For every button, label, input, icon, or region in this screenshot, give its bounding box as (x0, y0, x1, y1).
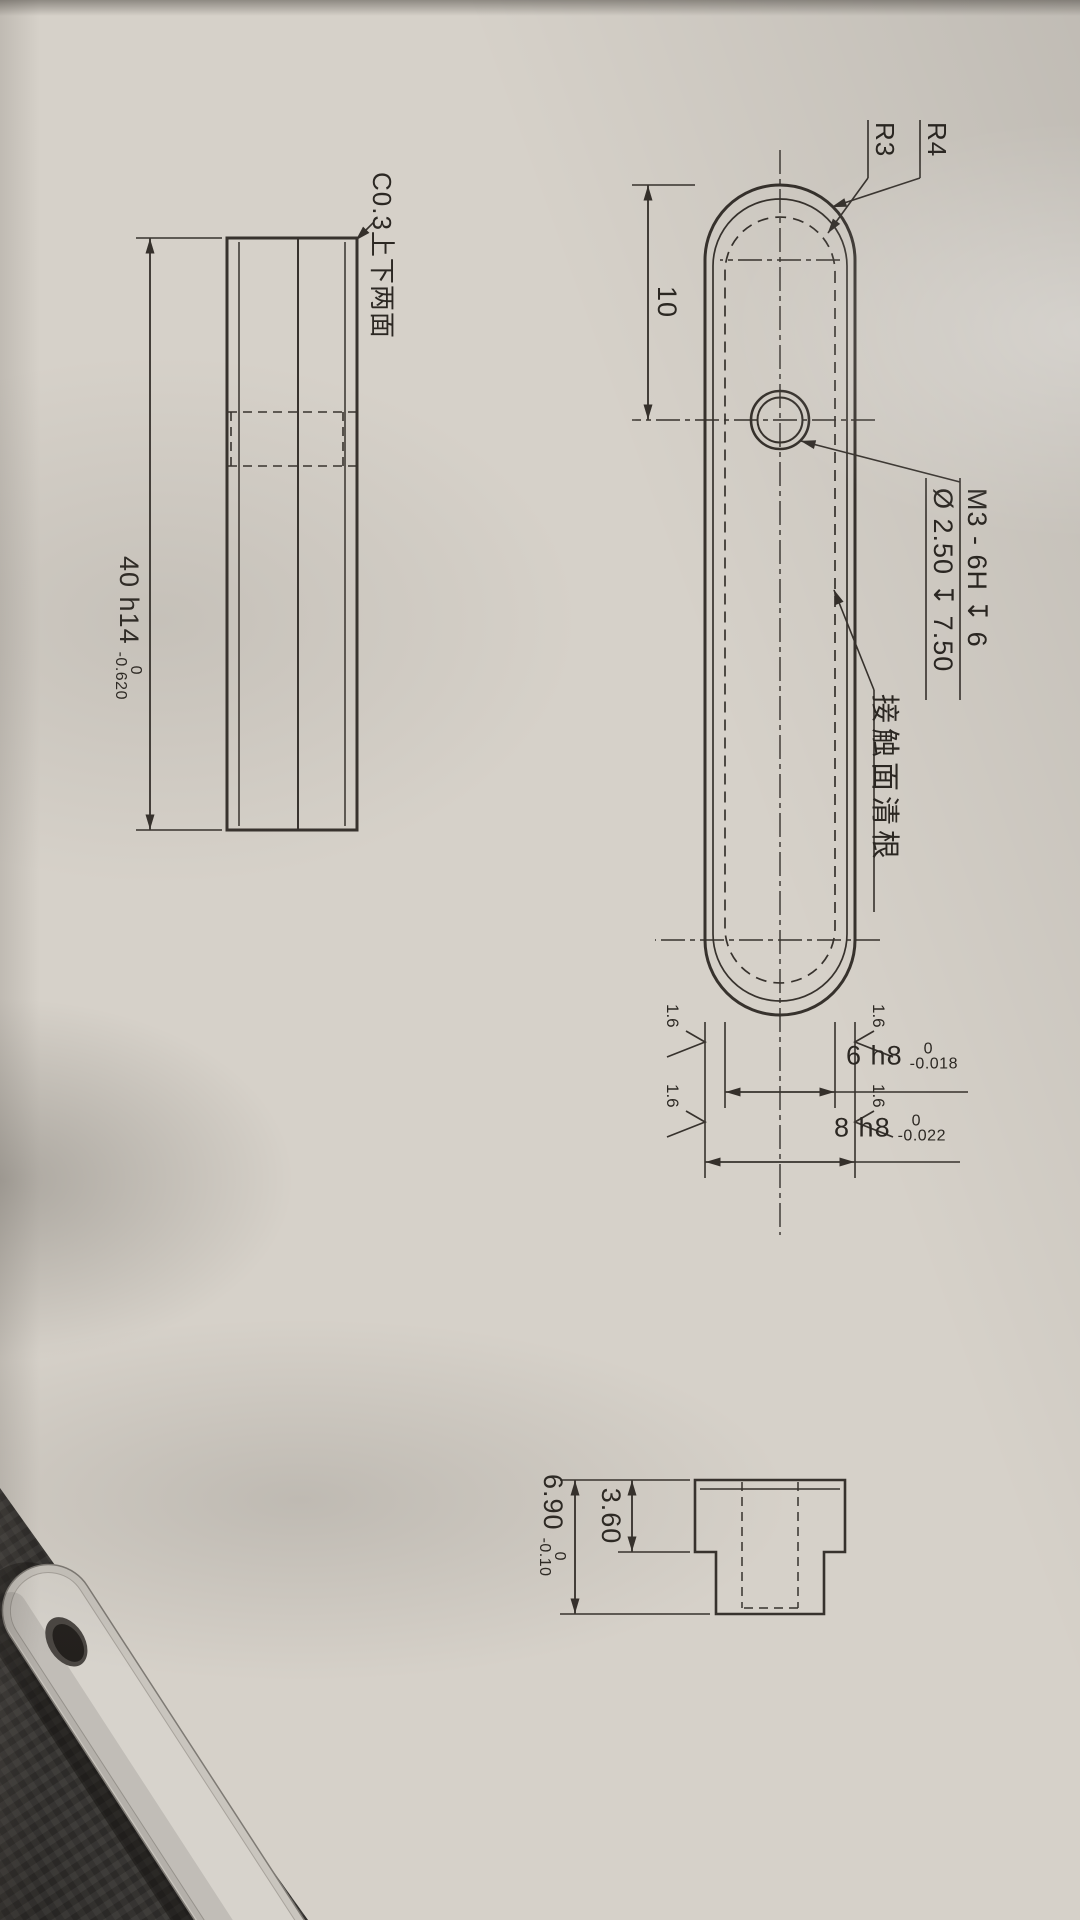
dim-690: 6.90 0 -0.10 (537, 1474, 568, 1577)
dim-360: 3.60 (595, 1478, 626, 1554)
drawing-sheet: R4 R3 10 M3 - 6H ↧ 6 Ø 2.50 ↧ 7.50 接触面清根… (0, 0, 1080, 1920)
dim-40-lines (136, 238, 222, 830)
contact-surface-note: 接触面清根 (866, 694, 908, 864)
dim-8h8-tol-lower: -0.022 (898, 1128, 946, 1143)
dim-6h8: 6 h8 0 -0.018 (846, 1041, 958, 1072)
thread-note-line1: M3 - 6H ↧ 6 (961, 488, 992, 648)
roughness-value-d: 1.6 (662, 1084, 682, 1108)
drawing-linework (0, 0, 1080, 1920)
dim-690-tol-upper: 0 (553, 1538, 568, 1577)
side-view (136, 222, 374, 830)
roughness-value-c: 1.6 (662, 1004, 682, 1028)
part-photo (0, 1488, 334, 1920)
dim-6h8-tol-lower: -0.018 (910, 1056, 958, 1071)
dim-360-lines (618, 1480, 690, 1552)
roughness-value-a: 1.6 (868, 1004, 888, 1028)
hidden-hole-lines (227, 412, 357, 466)
radius-label-r4: R4 (921, 122, 952, 157)
dim-40h14-tol-lower: -0.620 (114, 652, 129, 700)
roughness-value-b: 1.6 (868, 1084, 888, 1108)
dim-8h8: 8 h8 0 -0.022 (834, 1113, 946, 1144)
dim-6h8-tol-upper: 0 (910, 1041, 958, 1056)
dim-6h8-value: 6 h8 (846, 1041, 903, 1072)
dim-690-tol-lower: -0.10 (538, 1538, 553, 1577)
chamfer-note: C0.3上下两面 (365, 172, 402, 339)
dim-10: 10 (651, 272, 682, 332)
dim-690-value: 6.90 (537, 1474, 568, 1531)
dim-40h14-tol-upper: 0 (129, 652, 144, 700)
radius-label-r3: R3 (869, 122, 900, 157)
dim-690-lines (560, 1480, 710, 1614)
hidden-thread-lines (742, 1482, 798, 1608)
thread-note-line2: Ø 2.50 ↧ 7.50 (927, 488, 958, 672)
dim-8h8-tol-upper: 0 (898, 1113, 946, 1128)
dim-40h14: 40 h14 0 -0.620 (113, 556, 144, 700)
dim-40h14-value: 40 h14 (113, 556, 144, 645)
dim-8h8-value: 8 h8 (834, 1113, 891, 1144)
